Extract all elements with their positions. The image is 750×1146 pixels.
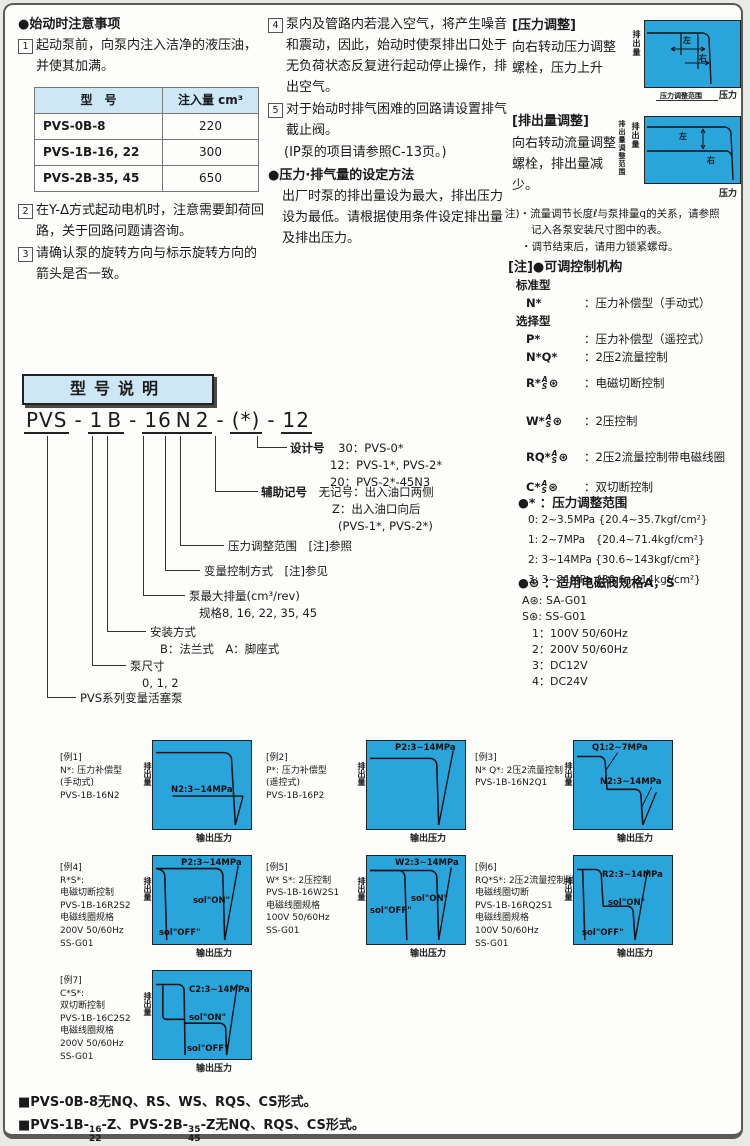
sol-on-label: sol"ON" — [608, 898, 645, 908]
right-turn-label: 右 — [707, 155, 715, 166]
table-header-row: 型 号 注入量 cm³ — [35, 88, 259, 114]
example-1-xlabel: 输出压力 — [196, 831, 232, 844]
callout-label: 辅助记号 — [261, 485, 307, 499]
footer-line-1: ■PVS-0B-8无NQ、RS、WS、RQS、CS形式。 — [18, 1092, 658, 1115]
callout-line1: 规格8, 16, 22, 35, 45 — [199, 605, 317, 622]
footer-line-2: ■PVS-1B-1622-Z、PVS-2B-3545-Z无NQ、RQS、CS形式… — [18, 1115, 658, 1144]
example-3-text: [例3] N* Q*: 2压2流量控制PVS-1B-16N2Q1 — [475, 752, 563, 790]
callout-line1: B：法兰式 A：脚座式 — [160, 641, 279, 658]
control-code: RQ*AS⊛ — [526, 450, 584, 465]
connector-line — [92, 436, 93, 666]
example-6-text: [例6] RQ*S*: 2压2流量控制附电磁线圈切断PVS-1B-16RQ2S1… — [475, 862, 574, 950]
model-code: PVS-1B-16N2-(*)-12 — [24, 408, 312, 434]
left-turn-label: 左 — [679, 131, 687, 142]
example-4-xlabel: 输出压力 — [196, 946, 232, 959]
control-desc: ：压力补偿型（遥控式） — [584, 331, 711, 347]
curve-label: C2:3~14MPa — [189, 985, 250, 995]
footer-notes: ■PVS-0B-8无NQ、RS、WS、RQS、CS形式。 ■PVS-1B-162… — [18, 1092, 658, 1144]
fraction-16-22: 1622 — [89, 1126, 102, 1144]
control-desc: ：压力补偿型（手动式） — [584, 295, 711, 311]
sol-on-label: sol"ON" — [193, 896, 230, 906]
callout-line1: 30：PVS-0* — [338, 441, 403, 455]
connector-line — [215, 436, 216, 492]
range-arrow-line — [656, 100, 718, 101]
flow-diagram-curves — [645, 117, 739, 182]
curve-label: N2:3~14MPa — [171, 785, 233, 795]
catalog-page: { "col1": { "title": "●始动时注意事项", "n1": "… — [0, 0, 750, 1146]
example-7-text: [例7] C*S*:双切断控制PVS-1B-16C2S2 电磁线圈规格200V … — [60, 975, 131, 1063]
model-seg-control: N — [174, 408, 194, 434]
volume-cell: 650 — [163, 166, 259, 192]
standard-type-label: 标准型 — [516, 277, 746, 293]
flow-diagram-xlabel: 压力 — [719, 186, 737, 199]
adjust-notes: 注)・流量调节长度ℓ与泵排量q的关系，请参照 记入各泵安装尺寸图中的表。 ・调节… — [505, 206, 747, 255]
sol-off-label: sol"OFF" — [187, 1044, 229, 1054]
control-code: P* — [526, 332, 584, 346]
volume-cell: 300 — [163, 140, 259, 166]
connector-line — [165, 436, 166, 571]
pressure-adjust-title: [压力调整] — [512, 16, 620, 37]
callout-pressure-range: 压力调整范围 [注]参照 — [228, 538, 352, 555]
solenoid-option: 2：200V 50/60Hz — [532, 642, 748, 658]
model-section-heading: 型号说明 — [22, 374, 214, 405]
connector-line — [47, 436, 48, 698]
model-cell: PVS-0B-8 — [35, 114, 163, 140]
callout-design-no: 设计号 30：PVS-0* — [290, 440, 404, 457]
startup-note-4: 4 泵内及管路内若混入空气，将产生噪音和震动，因此，始动时使泵排出口处于无负荷状… — [268, 14, 508, 98]
model-seg-aux: (*) — [230, 408, 263, 434]
note-number-4: 4 — [268, 18, 283, 33]
hyphen: - — [215, 408, 227, 432]
control-code: W*AS⊛ — [526, 414, 584, 429]
example-5-xlabel: 输出压力 — [410, 946, 446, 959]
startup-notes-column: ●始动时注意事项 1 起动泵前，向泵内注入洁净的液压油，并使其加满。 型 号 注… — [18, 14, 264, 286]
right-turn-label: 右 — [699, 53, 707, 64]
note-number-3: 3 — [18, 247, 33, 262]
callout-series-name: PVS系列变量活塞泵 — [80, 690, 183, 707]
connector-line — [215, 491, 258, 492]
hyphen: - — [265, 408, 277, 432]
control-item: R*AS⊛ ：电磁切断控制 — [526, 375, 746, 391]
example-3-chart: Q1:2~7MPa N2:3~14MPa — [573, 740, 673, 830]
model-seg-displacement: 16 — [142, 408, 173, 434]
startup-note-5-ref: (IP泵的项目请参照C-13页。) — [284, 142, 508, 163]
example-5-chart: W2:3~14MPa sol"ON" sol"OFF" — [366, 855, 466, 945]
solenoid-option: 4：DC24V — [532, 674, 748, 690]
callout-label: 泵最大排量(cm³/rev) — [189, 588, 317, 605]
model-seg-series: PVS — [24, 408, 69, 434]
fill-volume-table: 型 号 注入量 cm³ PVS-0B-8 220 PVS-1B-16, 22 3… — [34, 87, 259, 192]
table-row: PVS-0B-8 220 — [35, 114, 259, 140]
footer-part: ■PVS-1B- — [18, 1118, 89, 1133]
note-number-1: 1 — [18, 39, 33, 54]
example-2-text: [例2] P*: 压力补偿型(遥控式)PVS-1B-16P2 — [266, 752, 327, 802]
control-desc: ：2压控制 — [584, 413, 637, 429]
connector-line — [47, 697, 76, 698]
example-1-chart: N2:3~14MPa — [152, 740, 252, 830]
startup-notes-title: ●始动时注意事项 — [18, 14, 264, 35]
example-tag: [例3] — [475, 752, 563, 765]
example-2-chart: P2:3~14MPa — [366, 740, 466, 830]
example-7-xlabel: 输出压力 — [196, 1061, 232, 1074]
connector-line — [180, 545, 224, 546]
control-item: N* ：压力补偿型（手动式） — [526, 295, 746, 311]
callout-aux-l2: Z：出入油口向后 — [332, 501, 420, 518]
flow-adjust-diagram: 左 右 — [644, 116, 741, 184]
range-option: 0: 2~3.5MPa {20.4~35.7kgf/cm²} — [528, 511, 748, 531]
table-row: PVS-2B-35, 45 650 — [35, 166, 259, 192]
callout-aux-l3: (PVS-1*, PVS-2*) — [338, 518, 433, 535]
callout-mounting: 安装方式 B：法兰式 A：脚座式 — [150, 624, 279, 657]
example-2-xlabel: 输出压力 — [410, 831, 446, 844]
model-seg-mount: B — [105, 408, 124, 434]
connector-line — [165, 570, 200, 571]
solenoid-option: S⊛: SS-G01 — [522, 609, 748, 625]
middle-column: 4 泵内及管路内若混入空气，将产生噪音和震动，因此，始动时使泵排出口处于无负荷状… — [268, 14, 508, 250]
model-cell: PVS-1B-16, 22 — [35, 140, 163, 166]
control-mechanism-block: [注]●可调控制机构 标准型 N* ：压力补偿型（手动式） 选择型 P* ：压力… — [508, 256, 746, 497]
flow-diagram-ylabel: 排出量 — [630, 122, 641, 149]
curve-label: W2:3~14MPa — [395, 858, 459, 868]
solenoid-option: A⊛: SA-G01 — [522, 593, 748, 609]
adjust-note-line3: ・调节结束后，请用力锁紧螺母。 — [505, 239, 747, 255]
flow-adjust-title: [排出量调整] — [512, 112, 620, 133]
control-code: N* — [526, 296, 584, 310]
pressure-diagram-xlabel: 压力 — [719, 88, 737, 101]
left-turn-label: 左 — [683, 35, 691, 46]
example-4-text: [例4] R*S*:电磁切断控制PVS-1B-16R2S2 电磁线圈规格200V… — [60, 862, 131, 950]
example-3-xlabel: 输出压力 — [617, 831, 653, 844]
solenoid-spec-block: ●⊛ ：适用电磁阀规格A，S A⊛: SA-G01 S⊛: SS-G01 1：1… — [518, 572, 748, 691]
sol-off-label: sol"OFF" — [159, 928, 201, 938]
sol-on-label: sol"ON" — [411, 894, 448, 904]
table-row: PVS-1B-16, 22 300 — [35, 140, 259, 166]
control-code: N*Q* — [526, 350, 584, 364]
callout-displacement: 泵最大排量(cm³/rev) 规格8, 16, 22, 35, 45 — [189, 588, 317, 621]
callout-control-method: 变量控制方式 [注]参见 — [204, 563, 328, 580]
control-desc: ：电磁切断控制 — [584, 375, 665, 391]
control-desc: ：2压2流量控制带电磁线圈 — [584, 449, 725, 465]
volume-cell: 220 — [163, 114, 259, 140]
callout-label: 安装方式 — [150, 624, 279, 641]
flow-adjust-body: 向右转动流量调整螺栓，排出量减少。 — [512, 133, 620, 196]
connector-line — [107, 631, 146, 632]
pressure-adjust-block: [压力调整] 向右转动压力调整螺栓，压力上升 — [512, 16, 620, 79]
adjust-note-line2: 记入各泵安装尺寸图中的表。 — [505, 222, 747, 238]
example-tag: [例7] — [60, 975, 131, 988]
callout-line1: 0, 1, 2 — [142, 675, 179, 692]
example-tag: [例2] — [266, 752, 327, 765]
model-seg-design: 12 — [281, 408, 312, 434]
example-tag: [例1] — [60, 752, 122, 765]
example-tag: [例5] — [266, 862, 339, 875]
control-item: RQ*AS⊛ ：2压2流量控制带电磁线圈 — [526, 449, 746, 465]
connector-line — [180, 436, 181, 546]
example-7-chart: C2:3~14MPa sol"ON" sol"OFF" — [152, 970, 252, 1060]
pressure-adjust-body: 向右转动压力调整螺栓，压力上升 — [512, 37, 620, 79]
example-tag: [例4] — [60, 862, 131, 875]
startup-note-3-text: 请确认泵的旋转方向与标示旋转方向的箭头是否一致。 — [36, 243, 264, 285]
callout-aux-symbol: 辅助记号 无记号：出入油口两侧 — [261, 484, 434, 501]
startup-note-3: 3 请确认泵的旋转方向与标示旋转方向的箭头是否一致。 — [18, 243, 264, 285]
pressure-diagram-ylabel: 排出量 — [631, 30, 642, 57]
startup-note-5-text: 对于始动时排气困难的回路请设置排气截止阀。 — [286, 99, 508, 141]
connector-line — [257, 447, 287, 448]
solenoid-option: 3：DC12V — [532, 658, 748, 674]
chart-curve — [367, 741, 464, 828]
curve-label: Q1:2~7MPa — [592, 743, 648, 753]
connector-line — [92, 665, 126, 666]
callout-line1: 无记号：出入油口两侧 — [319, 485, 434, 499]
control-mechanism-title: [注]●可调控制机构 — [508, 256, 746, 275]
connector-line — [143, 436, 144, 596]
sol-on-label: sol"ON" — [189, 1013, 226, 1023]
flow-range-caption: 排出量调整范围 — [617, 120, 627, 176]
model-seg-size: 1 — [88, 408, 106, 434]
callout-label: 设计号 — [290, 441, 325, 455]
sol-off-label: sol"OFF" — [370, 906, 412, 916]
solenoid-spec-title: ●⊛ ：适用电磁阀规格A，S — [518, 572, 748, 591]
callout-design-no-l2: 12：PVS-1*, PVS-2* — [330, 457, 442, 474]
control-item: N*Q* ：2压2流量控制 — [526, 349, 746, 365]
fraction-35-45: 3545 — [188, 1126, 201, 1144]
callout-pump-size: 泵尺寸 0, 1, 2 — [130, 658, 179, 691]
pressure-adjust-diagram: 左 右 — [644, 20, 741, 88]
footer-part: -Z无NQ、RQS、CS形式。 — [201, 1118, 365, 1133]
curve-label: R2:3~14MPa — [602, 870, 663, 880]
range-option: 2: 3~14MPa {30.6~143kgf/cm²} — [528, 551, 748, 571]
control-desc: ：2压2流量控制 — [584, 349, 668, 365]
startup-note-1-text: 起动泵前，向泵内注入洁净的液压油，并使其加满。 — [36, 35, 264, 77]
connector-line — [143, 595, 185, 596]
example-4-chart: P2:3~14MPa sol"ON" sol"OFF" — [152, 855, 252, 945]
note-number-5: 5 — [268, 103, 283, 118]
example-5-text: [例5] W* S*: 2压控制PVS-1B-16W2S1电磁线圈规格 100V… — [266, 862, 339, 938]
hyphen: - — [72, 408, 84, 432]
startup-note-2: 2 在Y-Δ方式起动电机时，注意需要卸荷回路，关于回路问题请咨询。 — [18, 200, 264, 242]
example-1-text: [例1] N*: 压力补偿型(手动式)PVS-1B-16N2 — [60, 752, 122, 802]
control-item: W*AS⊛ ：2压控制 — [526, 413, 746, 429]
footer-part: -Z、PVS-2B- — [102, 1118, 189, 1133]
connector-line — [107, 436, 108, 632]
select-type-label: 选择型 — [516, 313, 746, 329]
startup-note-1: 1 起动泵前，向泵内注入洁净的液压油，并使其加满。 — [18, 35, 264, 77]
pressure-diagram-curves — [645, 21, 739, 86]
flow-adjust-block: [排出量调整] 向右转动流量调整螺栓，排出量减少。 — [512, 112, 620, 196]
sol-off-label: sol"OFF" — [582, 928, 624, 938]
callout-label: 泵尺寸 — [130, 658, 179, 675]
pressure-range-title: ●* ：压力调整范围 — [518, 492, 748, 511]
setting-method-title: ●压力·排气量的设定方法 — [268, 165, 508, 186]
solenoid-option: 1：100V 50/60Hz — [532, 626, 748, 642]
startup-note-5: 5 对于始动时排气困难的回路请设置排气截止阀。 — [268, 99, 508, 141]
curve-label: N2:3~14MPa — [600, 777, 662, 787]
model-seg-pressure: 2 — [194, 408, 212, 434]
startup-note-2-text: 在Y-Δ方式起动电机时，注意需要卸荷回路，关于回路问题请咨询。 — [36, 200, 264, 242]
control-code: R*AS⊛ — [526, 376, 584, 391]
table-header-model: 型 号 — [35, 88, 163, 114]
adjust-note-line1: 注)・流量调节长度ℓ与泵排量q的关系，请参照 — [505, 206, 747, 222]
setting-method-body: 出厂时泵的排出量设为最大，排出压力设为最低。请根据使用条件设定排出量及排出压力。 — [282, 186, 508, 249]
note-number-2: 2 — [18, 204, 33, 219]
example-6-xlabel: 输出压力 — [617, 946, 653, 959]
startup-note-4-text: 泵内及管路内若混入空气，将产生噪音和震动，因此，始动时使泵排出口处于无负荷状态反… — [286, 14, 508, 98]
model-cell: PVS-2B-35, 45 — [35, 166, 163, 192]
hyphen: - — [127, 408, 139, 432]
table-header-volume: 注入量 cm³ — [163, 88, 259, 114]
curve-label: P2:3~14MPa — [395, 743, 456, 753]
control-item: P* ：压力补偿型（遥控式） — [526, 331, 746, 347]
example-tag: [例6] — [475, 862, 574, 875]
curve-label: P2:3~14MPa — [181, 858, 242, 868]
example-6-chart: R2:3~14MPa sol"ON" sol"OFF" — [573, 855, 673, 945]
range-option: 1: 2~7MPa {20.4~71.4kgf/cm²} — [528, 531, 748, 551]
